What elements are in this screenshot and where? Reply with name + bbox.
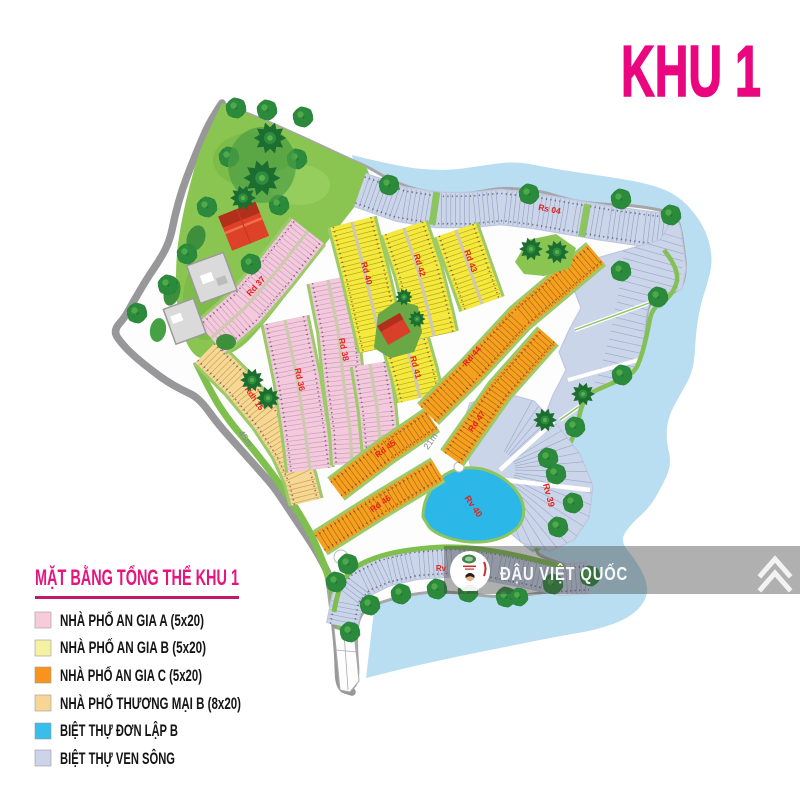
svg-text:MẶT BẰNG TỔNG THỂ KHU 1: MẶT BẰNG TỔNG THỂ KHU 1 (35, 565, 239, 590)
svg-text:ĐẬU VIỆT QUỐC: ĐẬU VIỆT QUỐC (500, 563, 628, 584)
svg-text:Rv: Rv (436, 564, 447, 573)
svg-text:BIỆT THỰ VEN SÔNG: BIỆT THỰ VEN SÔNG (60, 749, 175, 768)
svg-text:NHÀ PHỐ AN GIA B (5x20): NHÀ PHỐ AN GIA B (5x20) (60, 637, 206, 657)
svg-text:NHÀ PHỐ THƯƠNG MẠI B (8x20): NHÀ PHỐ THƯƠNG MẠI B (8x20) (60, 693, 241, 713)
svg-text:KHU 1: KHU 1 (621, 32, 761, 112)
svg-text:BIỆT THỰ ĐƠN LẬP B: BIỆT THỰ ĐƠN LẬP B (60, 721, 178, 740)
svg-text:NHÀ PHỐ AN GIA A (5x20): NHÀ PHỐ AN GIA A (5x20) (60, 610, 204, 630)
svg-text:NHÀ PHỐ AN GIA C (5x20): NHÀ PHỐ AN GIA C (5x20) (60, 665, 202, 685)
